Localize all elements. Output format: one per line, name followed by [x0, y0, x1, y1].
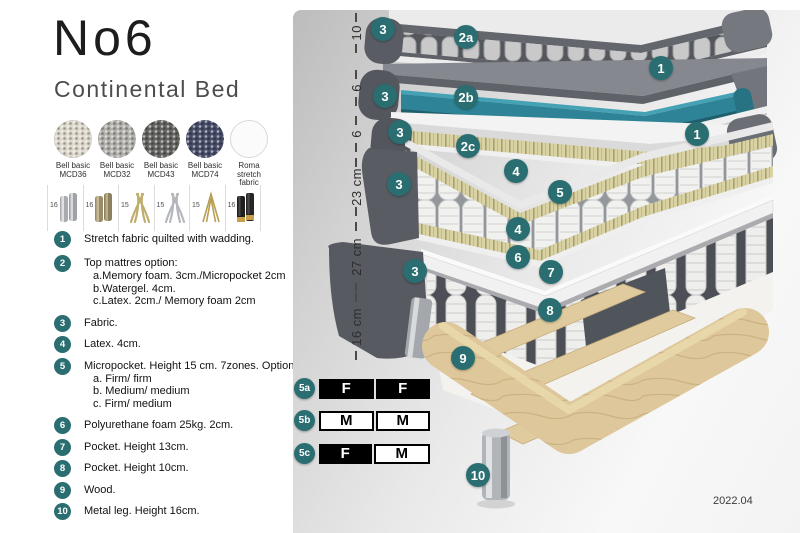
legend-list: 1Stretch fabric quilted with wadding.2To…: [52, 231, 298, 525]
dimension-tick: [355, 351, 357, 360]
legend-item-text: Polyurethane foam 25kg. 2cm.: [84, 419, 233, 432]
legend-item-text: Metal leg. Height 16cm.: [84, 505, 200, 518]
leg-options-row: 161615151516: [47, 185, 261, 231]
legend-item-text: Pocket. Height 10cm.: [84, 462, 189, 475]
legend-badge: 1: [54, 231, 71, 248]
fabric-swatch-circle: [142, 120, 180, 158]
dimension-label: 23 cm: [349, 168, 364, 206]
cylinder-bronze-leg-icon: [92, 190, 116, 226]
fabric-swatch-label: Bell basicMCD74: [188, 162, 222, 179]
legend-item-1: 1Stretch fabric quilted with wadding.: [52, 231, 298, 248]
legend-item-body: Latex. 4cm.: [84, 336, 141, 353]
fabric-swatch-circle: [54, 120, 92, 158]
fabric-swatch-circle: [230, 120, 268, 158]
firmness-bar: FF: [319, 379, 430, 399]
legend-badge: 3: [54, 315, 71, 332]
cylinder-black-gold-leg-icon: [234, 190, 258, 226]
legend-item-8: 8Pocket. Height 10cm.: [52, 460, 298, 477]
diagram-badge-9: 9: [451, 346, 475, 370]
firmness-cell: F: [319, 444, 372, 464]
legend-item-text: Pocket. Height 13cm.: [84, 441, 189, 454]
dimension-label: 16 cm: [349, 308, 364, 346]
legend-item-body: Fabric.: [84, 315, 118, 332]
leg-option-splayed-gold: 15: [118, 185, 154, 231]
legend-badge: 5: [54, 358, 71, 375]
diagram-badge-4: 4: [504, 159, 528, 183]
legend-badge: 4: [54, 336, 71, 353]
dimension-tick: [355, 44, 357, 53]
legend-sub-item: c.Latex. 2cm./ Memory foam 2cm: [93, 295, 286, 308]
firmness-row-5c: 5cFM: [294, 443, 430, 464]
legend-badge: 10: [54, 503, 71, 520]
leg-option-cylinder-black-gold: 16: [225, 185, 262, 231]
splayed-silver-leg-icon: [163, 190, 187, 226]
dimension-27cm: 27 cm: [341, 222, 371, 292]
firmness-cell: M: [376, 411, 431, 431]
firmness-row-5a: 5aFF: [294, 378, 430, 399]
cylinder-silver-leg-icon: [57, 190, 81, 226]
dimension-16cm: 16 cm: [341, 293, 371, 360]
legend-item-text: Stretch fabric quilted with wadding.: [84, 233, 254, 246]
legend-item-body: Metal leg. Height 16cm.: [84, 503, 200, 520]
legend-item-2: 2Top mattres option:a.Memory foam. 3cm./…: [52, 255, 298, 308]
diagram-badge-3: 3: [371, 17, 395, 41]
diagram-badge-2b: 2b: [454, 85, 478, 109]
legend-badge: 7: [54, 439, 71, 456]
dimension-tick: [355, 283, 357, 292]
fabric-swatch: Bell basicMCD74: [183, 120, 227, 188]
firmness-cell: M: [319, 411, 374, 431]
legend-item-text: Latex. 4cm.: [84, 338, 141, 351]
fabric-swatch-label: Bell basicMCD32: [100, 162, 134, 179]
leg-option-hairpin-gold: 15: [189, 185, 225, 231]
dimension-tick: [355, 70, 357, 79]
dimension-label: 6: [349, 84, 364, 92]
legend-badge: 9: [54, 482, 71, 499]
legend-badge: 8: [54, 460, 71, 477]
version-label: 2022.04: [713, 495, 753, 507]
diagram-badge-3: 3: [373, 84, 397, 108]
fabric-swatch-label: Bell basicMCD43: [144, 162, 178, 179]
bed-diagram-panel: 32a132b32c134546378910106623 cm27 cm16 c…: [293, 10, 800, 533]
fabric-swatch: Bell basicMCD32: [95, 120, 139, 188]
legend-item-text: Top mattres option:: [84, 257, 286, 270]
page-subtitle: Continental Bed: [54, 76, 240, 103]
diagram-badge-2a: 2a: [454, 25, 478, 49]
legend-sub-item: b.Watergel. 4cm.: [93, 283, 286, 296]
legend-item-body: Micropocket. Height 15 cm. 7zones. Optio…: [84, 358, 297, 411]
dimension-tick: [355, 207, 357, 216]
legend-item-3: 3Fabric.: [52, 315, 298, 332]
leg-option-cylinder-bronze: 16: [83, 185, 119, 231]
diagram-badge-2c: 2c: [456, 134, 480, 158]
leg-option-splayed-silver: 15: [154, 185, 190, 231]
legend-item-text: Micropocket. Height 15 cm. 7zones. Optio…: [84, 360, 297, 373]
legend-sub-item: a.Memory foam. 3cm./Micropocket 2cm: [93, 270, 286, 283]
fabric-swatch-row: Bell basicMCD36Bell basicMCD32Bell basic…: [51, 120, 271, 188]
dimension-tick: [355, 222, 357, 231]
fabric-swatch: Bell basicMCD43: [139, 120, 183, 188]
legend-item-4: 4Latex. 4cm.: [52, 336, 298, 353]
fabric-swatch: Bell basicMCD36: [51, 120, 95, 188]
diagram-badge-3: 3: [388, 120, 412, 144]
firmness-badge: 5a: [294, 378, 315, 399]
fabric-swatch-label: Bell basicMCD36: [56, 162, 90, 179]
diagram-badge-1: 1: [649, 56, 673, 80]
product-sheet: { "header": { "title": "No6", "subtitle"…: [0, 0, 800, 533]
firmness-bar: FM: [319, 444, 430, 464]
legend-item-body: Pocket. Height 13cm.: [84, 439, 189, 456]
fabric-swatch-label: Romastretch fabric: [227, 162, 271, 188]
swatch-label-line: MCD74: [188, 171, 222, 180]
legend-sub-item: a. Firm/ firm: [93, 373, 297, 386]
firmness-cell: F: [376, 379, 431, 399]
legend-item-text: Fabric.: [84, 317, 118, 330]
page-title: No6: [53, 12, 157, 64]
dimension-tick: [355, 13, 357, 22]
fabric-swatch-circle: [98, 120, 136, 158]
diagram-badge-3: 3: [387, 172, 411, 196]
diagram-badge-3: 3: [403, 259, 427, 283]
swatch-label-line: MCD36: [56, 171, 90, 180]
dimension-tick: [355, 158, 357, 167]
diagram-badge-1: 1: [685, 122, 709, 146]
legend-item-10: 10Metal leg. Height 16cm.: [52, 503, 298, 520]
leg-option-cylinder-silver: 16: [47, 185, 83, 231]
fabric-swatch-circle: [186, 120, 224, 158]
dimension-tick: [355, 97, 357, 106]
legend-item-9: 9Wood.: [52, 482, 298, 499]
diagram-badge-6: 6: [506, 245, 530, 269]
firmness-badge: 5c: [294, 443, 315, 464]
legend-item-body: Pocket. Height 10cm.: [84, 460, 189, 477]
diagram-badge-5: 5: [548, 180, 572, 204]
legend-item-7: 7Pocket. Height 13cm.: [52, 439, 298, 456]
firmness-badge: 5b: [294, 410, 315, 431]
legend-item-6: 6Polyurethane foam 25kg. 2cm.: [52, 417, 298, 434]
legend-sub-item: c. Firm/ medium: [93, 398, 297, 411]
dimension-label: 6: [349, 130, 364, 138]
dimension-6: 6: [341, 70, 371, 106]
dimension-23cm: 23 cm: [341, 158, 371, 216]
legend-item-text: Wood.: [84, 484, 116, 497]
hairpin-gold-leg-icon: [199, 190, 223, 226]
legend-badge: 6: [54, 417, 71, 434]
firmness-cell: M: [374, 444, 431, 464]
diagram-badge-4: 4: [506, 217, 530, 241]
legend-sub-item: b. Medium/ medium: [93, 385, 297, 398]
dimension-label: 10: [349, 25, 364, 40]
dimension-tick: [355, 293, 357, 302]
fabric-swatch: Romastretch fabric: [227, 120, 271, 188]
dimension-tick: [355, 116, 357, 125]
legend-item-body: Polyurethane foam 25kg. 2cm.: [84, 417, 233, 434]
firmness-row-5b: 5bMM: [294, 410, 430, 431]
legend-item-5: 5Micropocket. Height 15 cm. 7zones. Opti…: [52, 358, 298, 411]
swatch-label-line: MCD32: [100, 171, 134, 180]
legend-item-body: Stretch fabric quilted with wadding.: [84, 231, 254, 248]
firmness-cell: F: [319, 379, 374, 399]
legend-badge: 2: [54, 255, 71, 272]
legend-item-body: Wood.: [84, 482, 116, 499]
dimension-10: 10: [341, 13, 371, 53]
diagram-badge-10: 10: [466, 463, 490, 487]
splayed-gold-leg-icon: [128, 190, 152, 226]
swatch-label-line: MCD43: [144, 171, 178, 180]
dimension-tick: [355, 143, 357, 152]
diagram-badge-7: 7: [539, 260, 563, 284]
dimension-6: 6: [341, 116, 371, 152]
firmness-bar: MM: [319, 411, 430, 431]
dimension-label: 27 cm: [349, 238, 364, 276]
legend-item-body: Top mattres option:a.Memory foam. 3cm./M…: [84, 255, 286, 308]
diagram-badge-8: 8: [538, 298, 562, 322]
